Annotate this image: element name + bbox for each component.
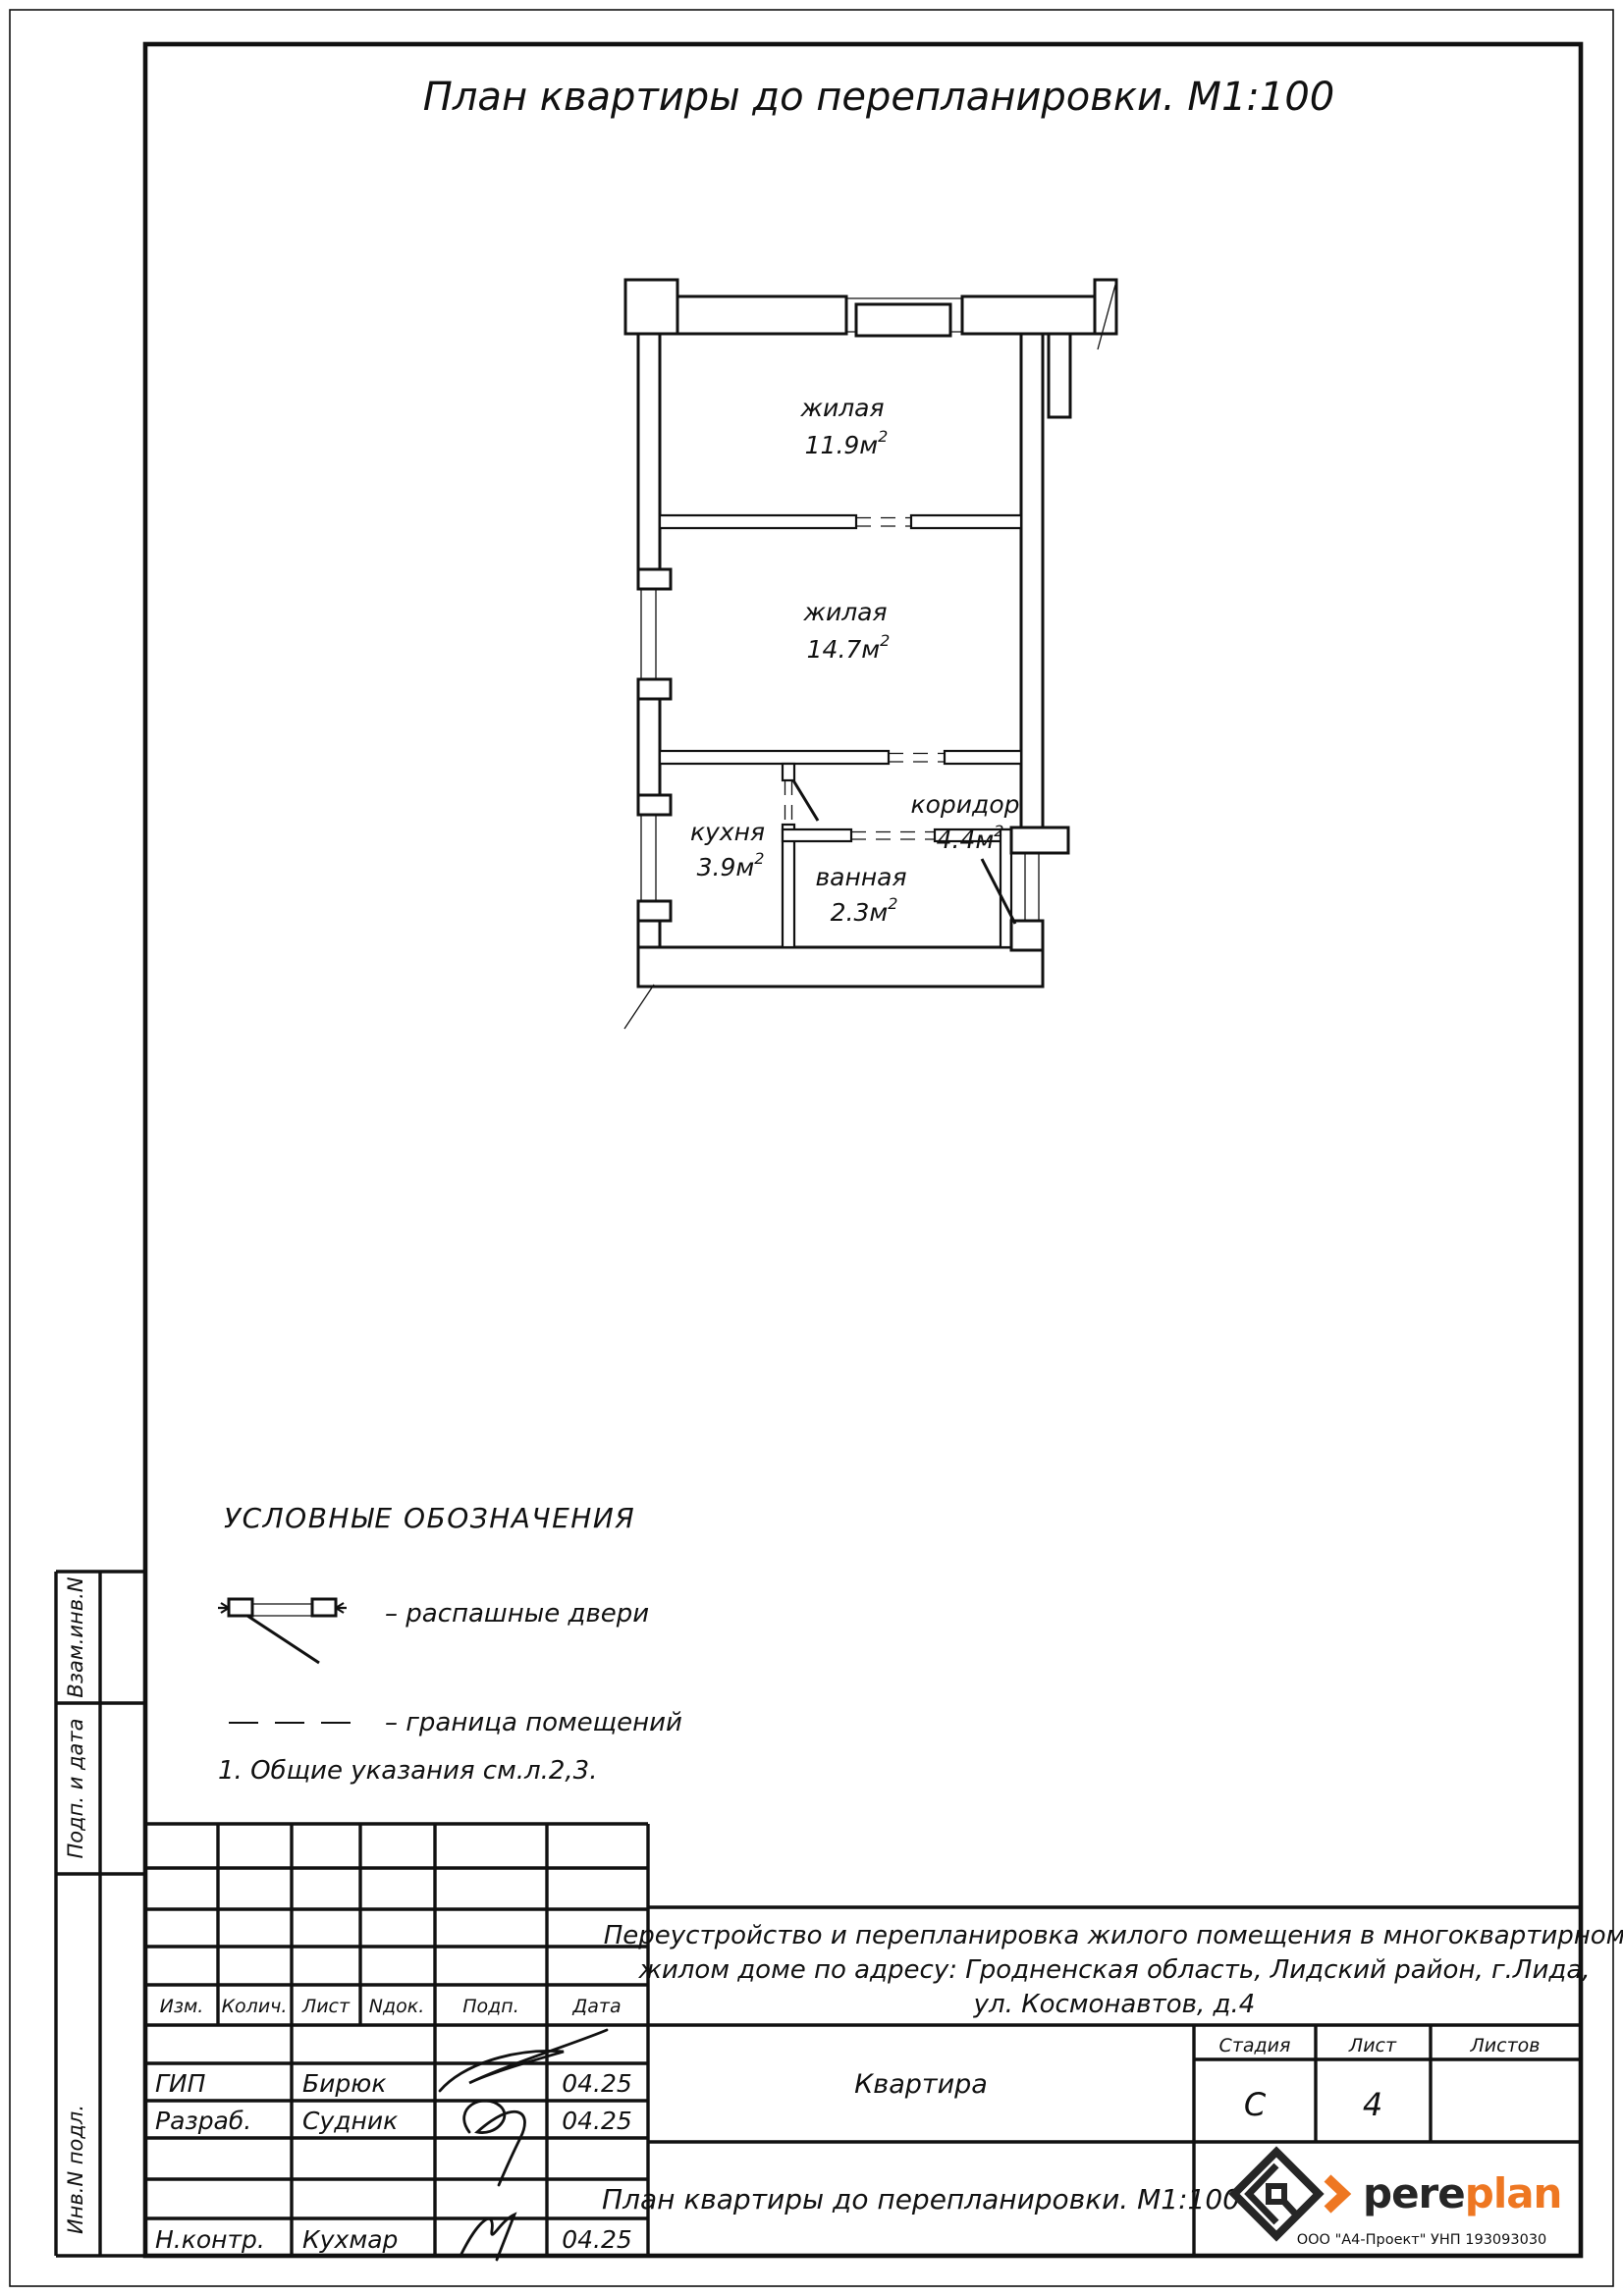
room-label-kitchen: кухня	[690, 818, 765, 846]
bathroom-wall-top-left	[783, 829, 851, 841]
partition-living1-living2	[660, 515, 856, 528]
room-label-living2: жилая	[802, 598, 887, 626]
door-leader-line	[247, 1616, 319, 1663]
room-area-corridor: 4.4м2	[937, 822, 1004, 854]
wall-left-upper	[638, 296, 660, 587]
bathroom-wall-right	[1001, 829, 1011, 947]
room-area-bathroom: 2.3м2	[831, 894, 898, 927]
stage-value: С	[1244, 2086, 1267, 2123]
door-leaf-left	[229, 1599, 252, 1616]
window-sill-block	[856, 304, 950, 336]
window-pier	[638, 795, 671, 815]
legend: УСЛОВНЫЕ ОБОЗНАЧЕНИЯ – распашные двери –…	[218, 1502, 682, 1786]
object-name: Квартира	[854, 2069, 988, 2100]
entrance-door	[982, 828, 1068, 950]
sheet-label: Лист	[1348, 2035, 1397, 2056]
entrance-pier-bottom	[1011, 921, 1043, 950]
title-block: Переустройство и перепланировка жилого п…	[602, 1907, 1623, 2256]
kitchen-wall	[783, 825, 794, 947]
room-label-living1: жилая	[799, 394, 884, 422]
door-arrow-right	[336, 1603, 347, 1613]
logo-monogram-stub	[1284, 2202, 1296, 2215]
general-note: 1. Общие указания см.л.2,3.	[218, 1756, 597, 1786]
strip-label-vzam: Взам.инв.N	[64, 1576, 87, 1697]
rev-header-podp: Подп.	[462, 1996, 519, 2017]
door-leaf-right	[312, 1599, 336, 1616]
window-kitchen	[638, 795, 671, 921]
pereplan-logo-icon	[1234, 2152, 1344, 2236]
rev-header-data: Дата	[571, 1996, 621, 2017]
side-strip: Взам.инв.N Подп. и дата Инв.N подл.	[56, 1572, 145, 2256]
entrance-pier-top	[1011, 828, 1068, 853]
rev-header-ndok: Nдок.	[369, 1996, 425, 2017]
company-footer: ООО "А4-Проект" УНП 193093030	[1297, 2232, 1547, 2248]
sheet-value: 4	[1363, 2086, 1382, 2123]
rev-header-kolich: Колич.	[222, 1996, 288, 2017]
window-pier	[638, 569, 671, 589]
page-title: План квартиры до перепланировки. М1:100	[423, 75, 1334, 120]
floor-plan: жилая 11.9м2 жилая 14.7м2 кухня 3.9м2 ва…	[624, 280, 1116, 1029]
legend-item-label: – распашные двери	[385, 1599, 649, 1629]
row-date-gip: 04.25	[562, 2069, 632, 2098]
logo-chevron	[1327, 2178, 1344, 2210]
partition-living2-hall	[660, 751, 889, 764]
revision-table: Изм. Колич. Лист Nдок. Подп. Дата ГИП Би…	[145, 1824, 648, 2260]
logo-monogram-square	[1269, 2186, 1284, 2202]
window-pier	[638, 679, 671, 699]
room-area-living2: 14.7м2	[807, 631, 891, 664]
wall-right-upper	[1021, 334, 1043, 853]
leader-line-bottom-left	[624, 985, 654, 1029]
row-name-gip: Бирюк	[302, 2069, 386, 2098]
rev-header-izm: Изм.	[160, 1996, 204, 2017]
row-role-gip: ГИП	[155, 2069, 206, 2098]
row-date-razrab: 04.25	[562, 2107, 632, 2135]
legend-item-label: – граница помещений	[385, 1708, 682, 1737]
kitchen-wall-stub	[783, 764, 794, 780]
stage-label: Стадия	[1219, 2035, 1291, 2056]
row-name-razrab: Судник	[302, 2107, 398, 2135]
signature	[464, 2101, 525, 2185]
sheets-label: Листов	[1470, 2035, 1541, 2056]
project-description-line2: жилом доме по адресу: Гродненская област…	[637, 1955, 1590, 1985]
project-description-line1: Переустройство и перепланировка жилого п…	[604, 1921, 1623, 1950]
room-label-corridor: коридор	[911, 790, 1020, 819]
partition-living1-living2	[911, 515, 1021, 528]
pier-top-left	[625, 280, 677, 334]
legend-title: УСЛОВНЫЕ ОБОЗНАЧЕНИЯ	[224, 1502, 635, 1534]
drawing-title: План квартиры до перепланировки. М1:100	[602, 2183, 1240, 2216]
pereplan-logo: pereplan ООО "А4-Проект" УНП 193093030	[1234, 2152, 1561, 2248]
room-label-bathroom: ванная	[815, 863, 906, 891]
room-area-kitchen: 3.9м2	[697, 849, 765, 881]
balcony-window	[846, 298, 962, 336]
brand-text: pereplan	[1363, 2169, 1561, 2217]
strip-label-inv: Инв.N подл.	[64, 2105, 87, 2234]
swing-doors-symbol	[218, 1599, 347, 1663]
row-name-nkontr: Кухмар	[302, 2225, 398, 2254]
row-role-nkontr: Н.контр.	[155, 2225, 265, 2254]
wall-bottom	[638, 947, 1043, 987]
room-area-living1: 11.9м2	[805, 427, 889, 459]
row-date-nkontr: 04.25	[562, 2225, 632, 2254]
kitchen-door-swing	[793, 780, 818, 821]
window-living2	[638, 569, 671, 699]
door-arrow-left	[218, 1603, 229, 1613]
signature	[461, 2215, 514, 2260]
project-description-line3: ул. Космонавтов, д.4	[973, 1990, 1256, 2019]
drawing-sheet: План квартиры до перепланировки. М1:100	[0, 0, 1623, 2296]
strip-label-podp: Подп. и дата	[64, 1718, 87, 1858]
wall-top-right	[962, 296, 1109, 334]
wall-stairwell-stub	[1049, 334, 1070, 417]
pier-top-right	[1095, 280, 1116, 334]
rev-header-list: Лист	[301, 1996, 351, 2017]
row-role-razrab: Разраб.	[155, 2107, 251, 2135]
partition-living2-hall	[945, 751, 1021, 764]
window-pier	[638, 901, 671, 921]
